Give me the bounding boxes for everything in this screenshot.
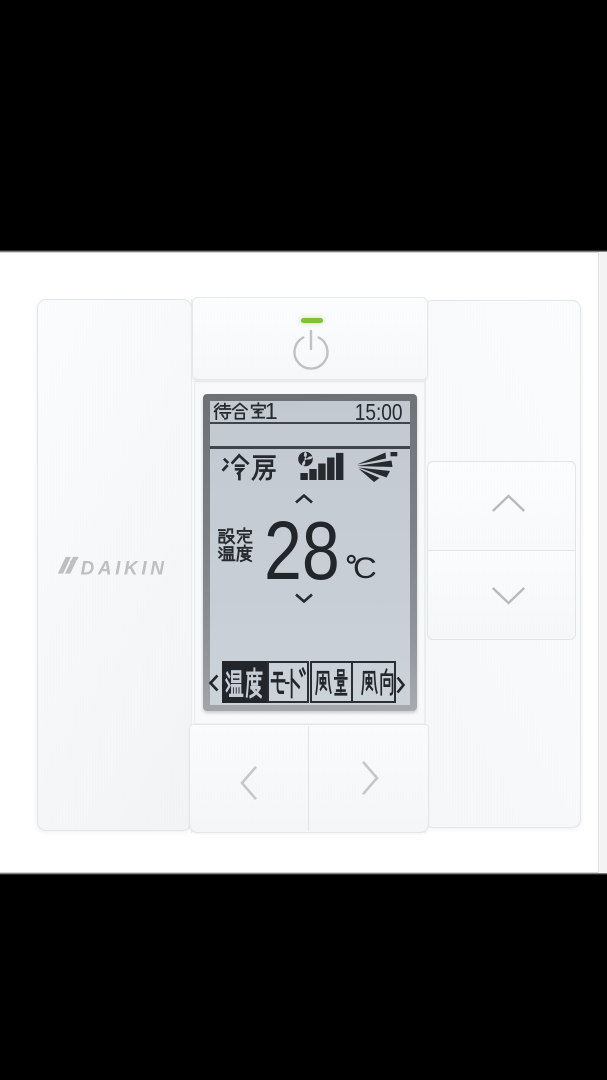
svg-text:DAIKIN: DAIKIN xyxy=(81,558,168,579)
